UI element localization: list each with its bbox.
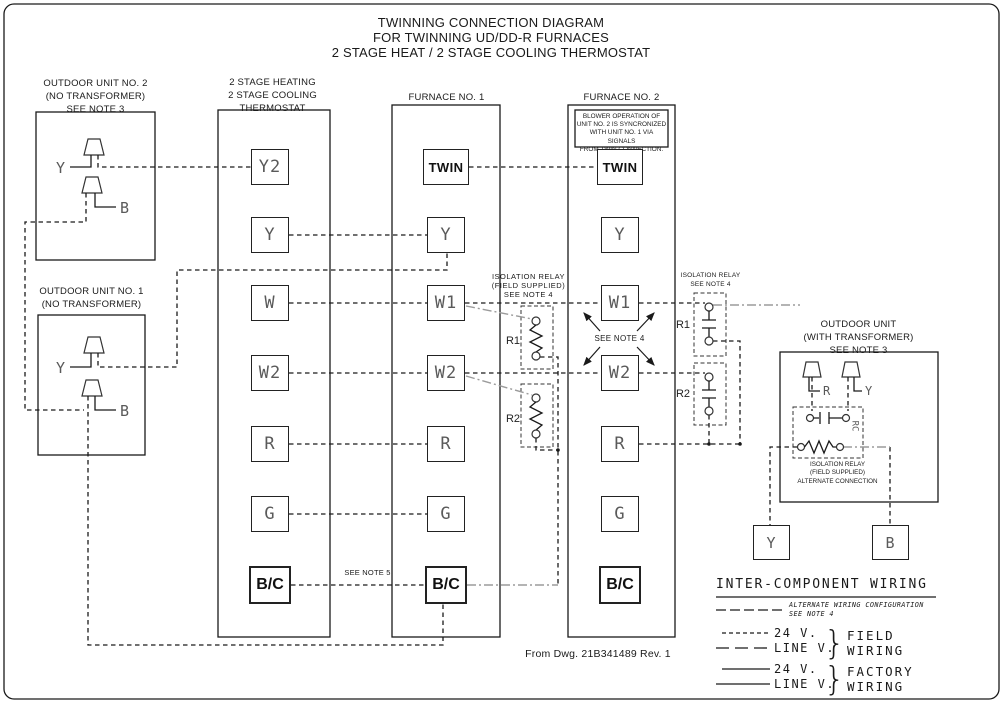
legend-alternate-line-1: ALTERNATE WIRING CONFIGURATION <box>789 601 924 609</box>
legend-title: INTER-COMPONENT WIRING <box>716 577 928 592</box>
thermostat-header: 2 STAGE HEATING 2 STAGE COOLING THERMOST… <box>195 76 350 115</box>
thermostat-terminal-w: W <box>251 285 289 321</box>
oux-label-1: OUTDOOR UNIT <box>781 318 936 331</box>
thermostat-header-2: 2 STAGE COOLING <box>195 89 350 102</box>
source-drawing-note: From Dwg. 21B341489 Rev. 1 <box>508 649 688 660</box>
ou2-terminal-b: B <box>120 199 129 217</box>
furnace2-terminal-w2: W2 <box>601 355 639 391</box>
outdoor-unit-transformer-label: OUTDOOR UNIT (WITH TRANSFORMER) SEE NOTE… <box>781 318 936 357</box>
ou1-terminal-y: Y <box>56 359 65 377</box>
relay-r2-right-label: R2 <box>668 388 690 400</box>
thermostat-terminal-bc: B/C <box>249 566 291 604</box>
ou2-terminal-y: Y <box>56 159 65 177</box>
furnace2-terminal-y: Y <box>601 217 639 253</box>
thermostat-terminal-g: G <box>251 496 289 532</box>
oux-note-1: ISOLATION RELAY <box>770 461 905 469</box>
transformer-relay-symbols <box>798 412 850 453</box>
oux-note-2: (FIELD SUPPLIED) <box>770 469 905 477</box>
furnace1-terminal-w2: W2 <box>427 355 465 391</box>
furnace2-note-2: UNIT NO. 2 IS SYNCRONIZED <box>576 121 667 129</box>
oux-terminal-b-box: B <box>872 525 909 560</box>
thermostat-header-3: THERMOSTAT <box>195 102 350 115</box>
furnace2-note-1: BLOWER OPERATION OF <box>576 113 667 121</box>
furnace2-terminal-twin: TWIN <box>597 149 643 185</box>
ou1-terminal-b: B <box>120 402 129 420</box>
oux-label-3: SEE NOTE 3 <box>781 344 936 357</box>
relay-left-label-2: (FIELD SUPPLIED) <box>486 281 571 290</box>
oux-note-3: ALTERNATE CONNECTION <box>770 478 905 486</box>
ou2-label-2: (NO TRANSFORMER) <box>18 90 173 103</box>
twinning-connection-diagram: TWINNING CONNECTION DIAGRAM FOR TWINNING… <box>0 0 1003 703</box>
legend-factory-wiring-label-2: WIRING <box>847 679 904 694</box>
legend-factory-24v-label: 24 V. <box>774 662 818 676</box>
furnace1-terminal-twin: TWIN <box>423 149 469 185</box>
component-outlines <box>36 105 938 637</box>
furnace-1-header: FURNACE NO. 1 <box>369 92 524 103</box>
furnace1-terminal-g: G <box>427 496 465 532</box>
relay-r1-right-label: R1 <box>668 319 690 331</box>
oux-relay-note: ISOLATION RELAY (FIELD SUPPLIED) ALTERNA… <box>770 461 905 486</box>
relay-right-label-2: SEE NOTE 4 <box>668 281 753 290</box>
relay-r2-left-label: R2 <box>498 413 520 425</box>
thermostat-terminal-y: Y <box>251 217 289 253</box>
relay-left-label-3: SEE NOTE 4 <box>486 290 571 299</box>
oux-terminal-y-box: Y <box>753 525 790 560</box>
furnace1-terminal-y: Y <box>427 217 465 253</box>
title-line-3: 2 STAGE HEAT / 2 STAGE COOLING THERMOSTA… <box>251 45 731 60</box>
furnace1-terminal-r: R <box>427 426 465 462</box>
thermostat-terminal-r: R <box>251 426 289 462</box>
diagram-title: TWINNING CONNECTION DIAGRAM FOR TWINNING… <box>251 15 731 61</box>
legend-field-24v-label: 24 V. <box>774 626 818 640</box>
see-note-4-callout: SEE NOTE 4 <box>577 333 662 344</box>
thermostat-header-1: 2 STAGE HEATING <box>195 76 350 89</box>
legend-field-wiring-label-2: WIRING <box>847 643 904 658</box>
isolation-relay-left-label: ISOLATION RELAY (FIELD SUPPLIED) SEE NOT… <box>486 272 571 299</box>
furnace2-note-3: WITH UNIT NO. 1 VIA SIGNALS <box>576 129 667 145</box>
ou2-label-3: SEE NOTE 3 <box>18 103 173 116</box>
title-line-1: TWINNING CONNECTION DIAGRAM <box>251 15 731 30</box>
ou1-label-2: (NO TRANSFORMER) <box>14 298 169 311</box>
relay-contact-symbols <box>702 303 716 415</box>
relay-left-label-1: ISOLATION RELAY <box>486 272 571 281</box>
furnace2-terminal-r: R <box>601 426 639 462</box>
legend-factory-brace: } <box>824 659 845 698</box>
oux-terminal-y: Y <box>865 384 872 398</box>
relay-right-label-1: ISOLATION RELAY <box>668 272 753 281</box>
furnace-2-header: FURNACE NO. 2 <box>544 92 699 103</box>
isolation-relay-right-label: ISOLATION RELAY SEE NOTE 4 <box>668 272 753 289</box>
outdoor-unit-1-label: OUTDOOR UNIT NO. 1 (NO TRANSFORMER) <box>14 285 169 311</box>
outdoor-unit-2-label: OUTDOOR UNIT NO. 2 (NO TRANSFORMER) SEE … <box>18 77 173 116</box>
oux-label-2: (WITH TRANSFORMER) <box>781 331 936 344</box>
furnace2-terminal-bc: B/C <box>599 566 641 604</box>
furnace2-terminal-g: G <box>601 496 639 532</box>
legend-field-wiring-label-1: FIELD <box>847 628 895 643</box>
relay-r1-left-label: R1 <box>498 335 520 347</box>
furnace1-terminal-bc: B/C <box>425 566 467 604</box>
furnace2-terminal-w1: W1 <box>601 285 639 321</box>
ou1-label-1: OUTDOOR UNIT NO. 1 <box>14 285 169 298</box>
ou2-label-1: OUTDOOR UNIT NO. 2 <box>18 77 173 90</box>
see-note-5-label: SEE NOTE 5 <box>330 567 405 578</box>
furnace1-terminal-w1: W1 <box>427 285 465 321</box>
relay-coil-symbols <box>530 317 542 438</box>
oux-terminal-r: R <box>823 384 830 398</box>
title-line-2: FOR TWINNING UD/DD-R FURNACES <box>251 30 731 45</box>
oux-rc-label: RC <box>849 421 859 432</box>
furnace-2-note: BLOWER OPERATION OF UNIT NO. 2 IS SYNCRO… <box>576 113 667 154</box>
thermostat-terminal-w2: W2 <box>251 355 289 391</box>
thermostat-terminal-y2: Y2 <box>251 149 289 185</box>
wire-nut-icons <box>82 139 860 396</box>
legend-alternate-line-2: SEE NOTE 4 <box>789 610 834 618</box>
legend-field-brace: } <box>824 623 845 662</box>
legend-factory-wiring-label-1: FACTORY <box>847 664 914 679</box>
